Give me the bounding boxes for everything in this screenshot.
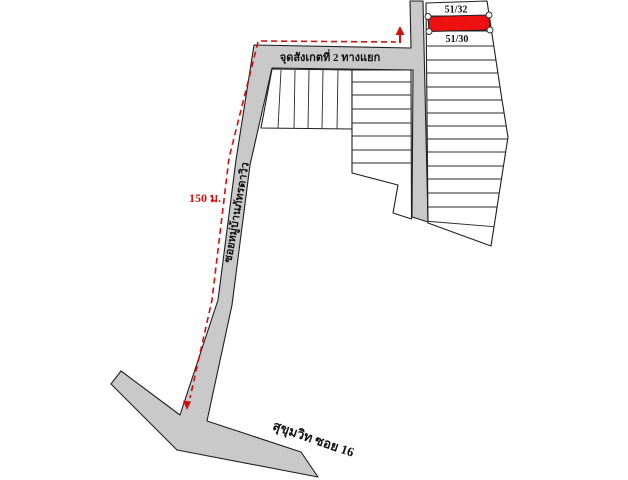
middle-horizontal-plot-block	[350, 70, 412, 219]
highlighted-plot[interactable]	[428, 15, 490, 32]
route-dashed-line-top	[261, 41, 396, 42]
selection-handle-icon[interactable]	[487, 27, 493, 33]
route-distance-label: 150 ม.	[189, 191, 221, 205]
plot-label-51-32: 51/32	[445, 5, 468, 16]
arrow-up-icon	[396, 26, 405, 35]
junction-road-label: จุดสังเกตที่ 2 ทางแยก	[280, 49, 381, 65]
middle-vertical-plot-block	[261, 69, 352, 129]
horizontal-plot-block-outline	[352, 70, 412, 219]
selection-handle-icon[interactable]	[486, 12, 492, 18]
plot-label-51-30: 51/30	[446, 34, 469, 45]
vertical-plot-block-outline	[261, 69, 352, 129]
map-svg: 51/32 51/30 150 ม. จุดสังเกตท	[0, 0, 628, 480]
right-plot-block: 51/32 51/30	[424, 1, 510, 246]
land-plot-location-map: 51/32 51/30 150 ม. จุดสังเกตท	[0, 0, 628, 480]
selection-handle-icon[interactable]	[425, 14, 431, 20]
selection-handle-icon[interactable]	[426, 29, 432, 35]
